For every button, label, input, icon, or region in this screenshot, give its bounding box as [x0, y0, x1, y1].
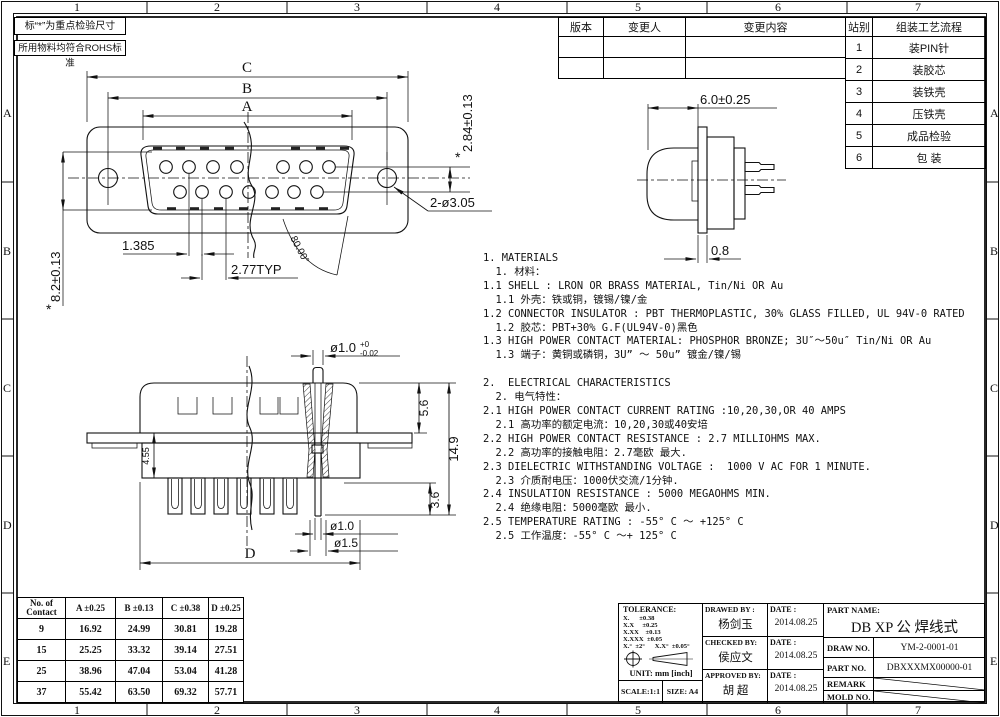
dimension-depth: 6.0±0.25 [648, 92, 777, 150]
table-row: 916.92 24.9930.81 19.28 [18, 619, 244, 640]
technical-notes: 1. MATERIALS 1. 材料： 1.1 SHELL : LRON OR … [483, 252, 965, 544]
side-pin-upper [745, 163, 774, 172]
svg-text:A: A [242, 99, 253, 115]
col-label: 7 [915, 0, 921, 15]
svg-text:ø1.0: ø1.0 [330, 340, 356, 355]
revision-col-content: 变更内容 [686, 18, 846, 37]
rear-insulator-block [707, 137, 734, 229]
remark-row: REMARK [824, 678, 985, 691]
pin-holes-bottom-row [174, 186, 324, 199]
checked-by-label: CHECKED BY: [705, 638, 757, 647]
date-cell: DATE : 2014.08.25 [768, 670, 824, 703]
size-label: SIZE: A4 [663, 681, 702, 703]
col-label: 4 [494, 0, 500, 15]
drawed-by-cell: DRAWED BY : 杨剑玉 [703, 604, 768, 637]
date-value: 2014.08.25 [768, 651, 824, 661]
cone-symbol-icon [649, 653, 693, 666]
svg-text:D: D [245, 546, 256, 562]
svg-text:ø1.5: ø1.5 [334, 536, 358, 550]
dimension-pitch: 2.77TYP [181, 199, 298, 280]
svg-text:1.385: 1.385 [122, 238, 155, 253]
mold-no-label: MOLD NO. [824, 691, 874, 704]
col-label: 5 [635, 703, 641, 717]
dimension-shell-height: 5.6 [359, 383, 456, 433]
revision-row [559, 58, 846, 79]
col-label: 6 [775, 703, 781, 717]
date-label: DATE : [770, 671, 796, 680]
approved-by-label: APPROVED BY: [705, 671, 761, 680]
contact-col-header: No. ofContact [18, 598, 66, 619]
pin-top-cap [313, 368, 323, 384]
date-cell: DATE : 2014.08.25 [768, 637, 824, 670]
dimension-pin-diameter-top: ø1.0 +0 -0.02 [291, 340, 400, 365]
tolerance-line: X.XX ±0.13 [623, 629, 661, 636]
part-name-cell: PART NAME: DB XP 公 焊线式 [824, 604, 985, 638]
svg-text:ø1.0: ø1.0 [330, 519, 354, 533]
dim-d-header: D ±0.25 [209, 598, 244, 619]
sectioned-center-contact [303, 368, 333, 517]
section-break-line [247, 366, 252, 530]
flange-detail [692, 161, 698, 201]
svg-text:-0.02: -0.02 [360, 349, 379, 358]
process-row: 4压铁壳 [846, 103, 986, 125]
revision-row [559, 37, 846, 58]
svg-text:80.00°: 80.00° [288, 234, 311, 265]
tolerance-line: X. ±0.38 [623, 615, 654, 622]
section-view: ø1.0 +0 -0.02 5.6 14.9 4.55 [87, 340, 461, 570]
mold-no-value-empty [874, 691, 985, 703]
dates-column: DATE : 2014.08.25 DATE : 2014.08.25 DATE… [768, 604, 824, 703]
table-row: 3755.42 63.5069.32 57.71 [18, 682, 244, 703]
draw-no-value: YM-2-0001-01 [874, 638, 985, 658]
shell-windows [178, 397, 298, 414]
dsub-trapezoid-inner [146, 150, 349, 210]
side-pin-lower [745, 186, 774, 195]
col-label: 1 [74, 703, 80, 717]
part-no-row: PART NO. DBXXXMX00000-01 [824, 658, 985, 678]
flange-foot-right [368, 443, 412, 448]
date-value: 2014.08.25 [768, 684, 824, 694]
approved-by-name: 胡 超 [703, 682, 768, 698]
row-label: B [3, 244, 11, 259]
part-name-value: DB XP 公 焊线式 [824, 616, 985, 637]
svg-text:B: B [242, 81, 252, 97]
row-label: C [990, 381, 998, 396]
col-label: 2 [214, 0, 220, 15]
first-angle-projection-icon [624, 651, 642, 668]
dsub-trapezoid-outer [141, 146, 354, 214]
remark-label: REMARK [824, 678, 874, 691]
dim-a-header: A ±0.25 [66, 598, 116, 619]
process-col-flow: 组装工艺流程 [873, 18, 986, 37]
svg-text:C: C [242, 60, 252, 76]
col-label: 3 [354, 0, 360, 15]
svg-text:2-ø3.05: 2-ø3.05 [430, 195, 475, 210]
part-no-value: DBXXXMX00000-01 [874, 658, 985, 678]
part-no-label: PART NO. [824, 658, 874, 678]
tolerance-box: TOLERANCE: X. ±0.38 X.X ±0.25 X.XX ±0.13… [619, 604, 703, 703]
row-label: D [990, 518, 999, 533]
revision-col-author: 变更人 [604, 18, 686, 37]
process-col-station: 站别 [846, 18, 873, 37]
svg-text:+0: +0 [360, 340, 370, 349]
dim-b-header: B ±0.13 [116, 598, 163, 619]
table-row: 2538.96 47.0453.04 41.28 [18, 661, 244, 682]
dimension-angle: 80.00° [283, 216, 348, 275]
date-label: DATE : [770, 605, 796, 614]
row-label: A [990, 106, 999, 121]
process-row: 3装铁壳 [846, 81, 986, 103]
signatures-column: DRAWED BY : 杨剑玉 CHECKED BY: 侯应文 APPROVED… [703, 604, 768, 703]
revision-col-version: 版本 [559, 18, 604, 37]
scale-label: SCALE:1:1 [619, 681, 663, 703]
svg-text:3.6: 3.6 [428, 491, 442, 508]
process-row: 6包 装 [846, 147, 986, 169]
row-label: B [990, 244, 998, 259]
title-block: TOLERANCE: X. ±0.38 X.X ±0.25 X.XX ±0.13… [618, 603, 985, 702]
svg-text:2.77TYP: 2.77TYP [231, 262, 282, 277]
process-row: 1装PIN针 [846, 37, 986, 59]
draw-no-label: DRAW NO. [824, 638, 874, 658]
date-label: DATE : [770, 638, 796, 647]
part-info-area: PART NAME: DB XP 公 焊线式 DRAW NO. YM-2-000… [824, 604, 985, 703]
date-value: 2014.08.25 [768, 618, 824, 628]
critical-dim-star: * [455, 149, 461, 165]
dimension-D: D [140, 482, 360, 570]
revision-table: 版本 变更人 变更内容 [558, 17, 846, 79]
draw-no-row: DRAW NO. YM-2-0001-01 [824, 638, 985, 658]
section-flange [87, 433, 412, 443]
remark-value-empty [874, 678, 985, 690]
checked-by-name: 侯应文 [703, 649, 768, 665]
assembly-process-table: 站别 组装工艺流程 1装PIN针 2装胶芯 3装铁壳 4压铁壳 5成品检验 6包… [845, 17, 986, 169]
col-label: 3 [354, 703, 360, 717]
rear-insulator-step [734, 148, 745, 219]
tolerance-line: X.X ±0.25 [623, 622, 658, 629]
projection-symbols [623, 650, 699, 668]
svg-text:6.0±0.25: 6.0±0.25 [700, 92, 751, 107]
flange-foot-left [92, 443, 137, 448]
dimension-tail-length: 3.6 [344, 483, 442, 515]
col-label: 7 [915, 703, 921, 717]
pin-holes-top-row [160, 161, 336, 174]
unit-label: UNIT: mm [inch] [619, 668, 703, 678]
engineering-drawing-sheet: C B A 2.84±0.13 * [0, 0, 1000, 717]
table-row: 1525.25 33.3239.14 27.51 [18, 640, 244, 661]
critical-dim-star: * [46, 301, 52, 317]
row-label: C [3, 381, 11, 396]
svg-text:4.55: 4.55 [141, 447, 151, 465]
svg-text:14.9: 14.9 [446, 436, 461, 461]
row-label: A [3, 106, 12, 121]
mold-no-row: MOLD NO. [824, 691, 985, 704]
process-row: 2装胶芯 [846, 59, 986, 81]
break-line [244, 122, 255, 258]
col-label: 6 [775, 0, 781, 15]
row-label: E [3, 654, 10, 669]
part-name-label: PART NAME: [827, 605, 880, 615]
scale-size-row: SCALE:1:1 SIZE: A4 [619, 680, 702, 702]
solder-cup-pins [168, 478, 297, 514]
col-label: 5 [635, 0, 641, 15]
mounting-holes [99, 152, 397, 205]
side-view: 6.0±0.25 0.8 [637, 92, 786, 263]
col-label: 4 [494, 703, 500, 717]
row-label: E [990, 654, 997, 669]
dim-c-header: C ±0.38 [163, 598, 209, 619]
dimension-row-spacing: 2.84±0.13 * [323, 94, 475, 192]
col-label: 2 [214, 703, 220, 717]
tolerance-line: X.XXX ±0.05 [623, 636, 662, 643]
row-label: D [3, 518, 12, 533]
process-row: 5成品检验 [846, 125, 986, 147]
dimension-insulator: 4.55 [141, 433, 154, 478]
side-shell-outline [647, 148, 698, 220]
svg-text:8.2±0.13: 8.2±0.13 [48, 251, 63, 302]
approved-by-cell: APPROVED BY: 胡 超 [703, 670, 768, 703]
svg-text:2.84±0.13: 2.84±0.13 [460, 94, 475, 152]
col-label: 1 [74, 0, 80, 15]
tolerance-angle-line: X.° ±2° X.X° ±0.05° [623, 643, 690, 650]
svg-text:5.6: 5.6 [417, 399, 431, 416]
date-cell: DATE : 2014.08.25 [768, 604, 824, 637]
inspection-note: 标“*”为重点检验尺寸 [14, 17, 126, 35]
front-view: C B A 2.84±0.13 * [46, 60, 492, 317]
dimension-mount-holes: 2-ø3.05 [394, 187, 492, 211]
contact-dimension-table: No. ofContact A ±0.25 B ±0.13 C ±0.38 D … [17, 597, 244, 703]
checked-by-cell: CHECKED BY: 侯应文 [703, 637, 768, 670]
dimension-A: A [143, 99, 352, 140]
drawed-by-label: DRAWED BY : [705, 605, 755, 614]
drawed-by-name: 杨剑玉 [703, 616, 768, 632]
shell-outline [87, 127, 408, 233]
rohs-note: 所用物料均符合ROHS标准 [14, 40, 126, 56]
tolerance-label: TOLERANCE: [623, 605, 676, 614]
